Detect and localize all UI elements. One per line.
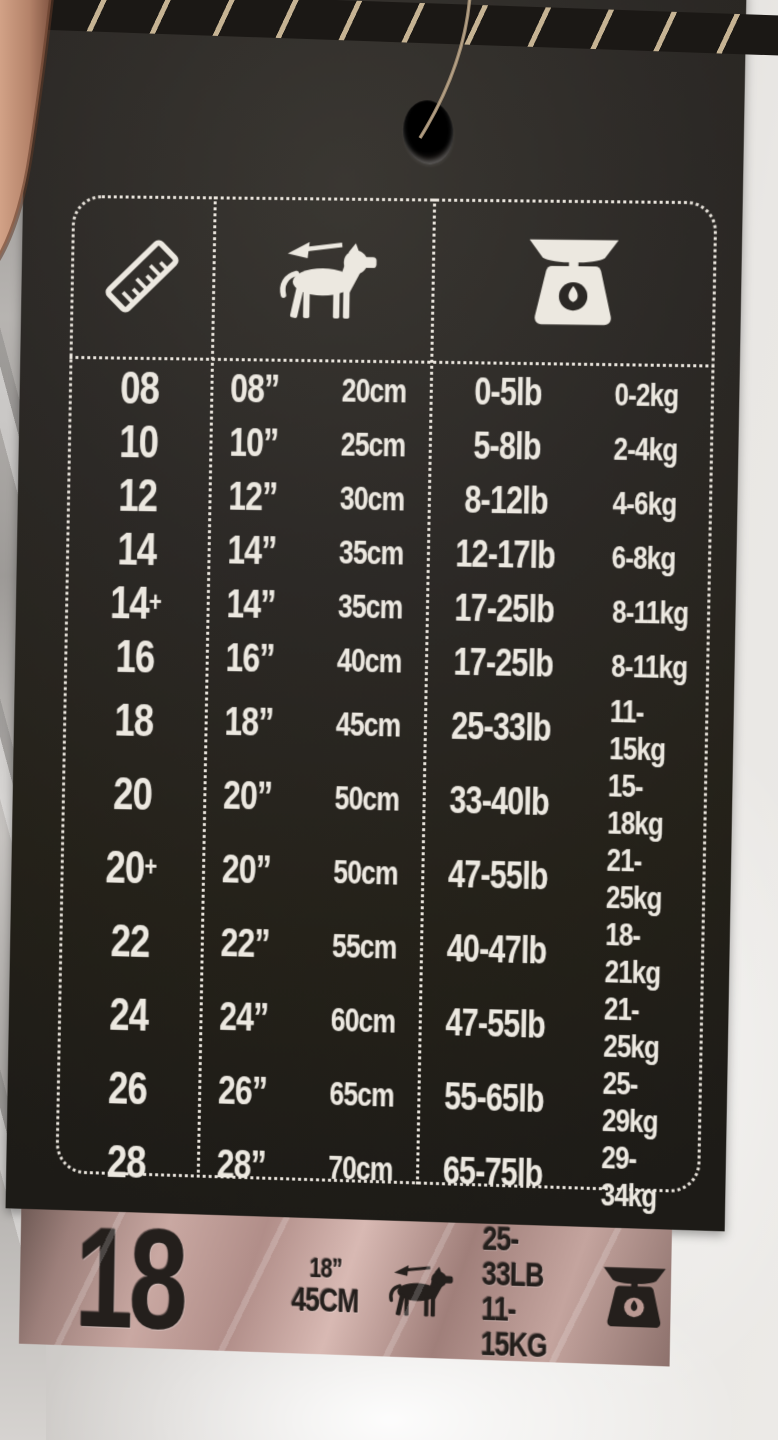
length-cell: 12”30cm xyxy=(208,474,428,523)
length-cell: 20”50cm xyxy=(202,846,422,896)
length-cell: 20”50cm xyxy=(203,773,423,823)
size-cell: 20+ xyxy=(60,839,202,896)
weight-cell: 47-55lb21-25kg xyxy=(421,837,706,918)
size-cell: 14 xyxy=(66,521,208,577)
size-cell: 16 xyxy=(64,628,206,685)
length-cell: 26”65cm xyxy=(198,1068,418,1119)
weight-cell: 17-25lb8-11kg xyxy=(426,586,711,635)
length-cell: 16”40cm xyxy=(205,635,425,684)
footer-weight: 25-33LB 11-15KG xyxy=(469,1221,587,1365)
weight-cell: 47-55lb21-25kg xyxy=(418,985,703,1067)
footer-length-cm: 45CM xyxy=(291,1282,359,1319)
dog-back-length-icon xyxy=(376,1255,456,1324)
size-row: 18 18”45cm 25-33lb11-15kg xyxy=(63,682,709,770)
footer-band: 18 18” 45CM 25-33LB 11-15KG xyxy=(19,1209,672,1367)
footer-weight-kg: 11-15KG xyxy=(481,1292,575,1365)
weight-cell: 40-47lb18-21kg xyxy=(419,911,704,993)
ruler-icon xyxy=(93,228,190,325)
size-cell: 26 xyxy=(56,1059,198,1117)
tag-string xyxy=(0,0,778,220)
size-chart-table: 08 08”20cm 0-5lb0-2kg 10 10”25cm 5-8lb2-… xyxy=(55,195,717,1193)
weight-cell: 17-25lb8-11kg xyxy=(425,641,710,690)
table-header-row xyxy=(70,195,718,365)
weight-cell: 25-33lb11-15kg xyxy=(423,689,708,769)
size-rows: 08 08”20cm 0-5lb0-2kg 10 10”25cm 5-8lb2-… xyxy=(56,360,715,1185)
length-cell: 14”35cm xyxy=(206,581,426,630)
length-cell: 22”55cm xyxy=(200,920,420,971)
length-cell: 10”25cm xyxy=(209,420,429,468)
footer-size: 18 xyxy=(74,1213,184,1348)
size-cell: 22 xyxy=(59,912,201,969)
dog-back-length-icon xyxy=(261,232,382,325)
weight-cell: 33-40lb15-18kg xyxy=(422,763,707,844)
weight-cell: 55-65lb25-29kg xyxy=(417,1059,702,1142)
weight-cell: 8-12lb4-6kg xyxy=(428,478,713,526)
size-cell: 24 xyxy=(58,985,200,1043)
weight-cell: 0-5lb0-2kg xyxy=(429,370,714,417)
size-cell: 18 xyxy=(63,692,205,749)
size-cell: 12 xyxy=(67,467,209,523)
size-cell: 20 xyxy=(62,765,204,822)
length-cell: 24”60cm xyxy=(199,994,419,1045)
size-cell: 10 xyxy=(68,414,210,470)
footer-weight-lb: 25-33LB xyxy=(482,1222,576,1295)
length-cell: 18”45cm xyxy=(204,699,424,749)
weight-cell: 65-75lb29-34kg xyxy=(416,1133,701,1216)
length-cell: 08”20cm xyxy=(210,366,430,414)
back-length-column-header xyxy=(211,196,433,360)
finger xyxy=(0,0,80,300)
footer-length: 18” 45CM xyxy=(283,1253,368,1319)
size-row: 08 08”20cm 0-5lb0-2kg xyxy=(69,360,715,423)
size-cell: 14+ xyxy=(65,574,207,630)
photo-of-size-tag: 08 08”20cm 0-5lb0-2kg 10 10”25cm 5-8lb2-… xyxy=(0,0,778,1440)
size-cell: 08 xyxy=(69,360,211,416)
weight-scale-icon xyxy=(520,234,626,330)
weight-cell: 12-17lb6-8kg xyxy=(427,532,712,580)
footer-length-inches: 18” xyxy=(309,1254,342,1284)
size-cell: 28 xyxy=(55,1132,197,1190)
weight-scale-icon xyxy=(598,1259,672,1334)
length-cell: 14”35cm xyxy=(207,528,427,577)
weight-column-header xyxy=(430,199,717,365)
weight-cell: 5-8lb2-4kg xyxy=(428,424,713,472)
length-cell: 28”70cm xyxy=(197,1141,417,1193)
